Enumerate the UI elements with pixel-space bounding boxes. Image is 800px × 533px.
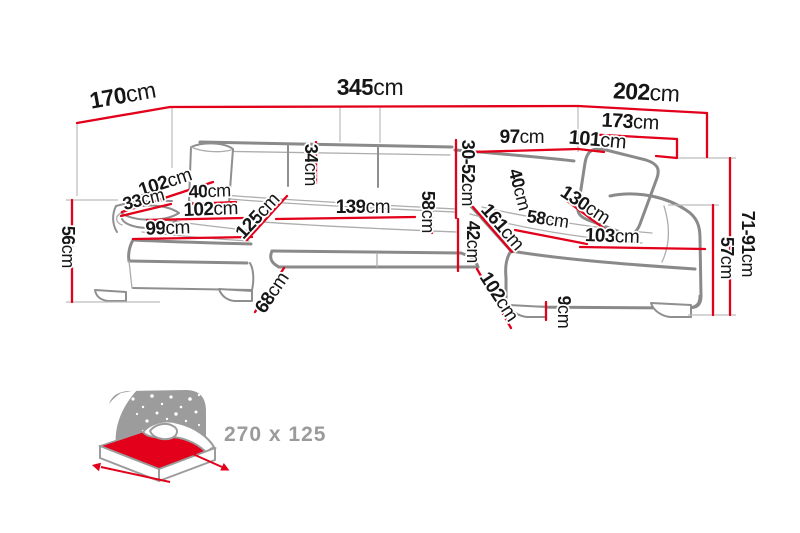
right-chaise-front-top	[511, 251, 695, 269]
left-chaise-front-bottom	[129, 261, 247, 263]
dim-leg-height-label: 9cm	[554, 296, 574, 329]
sleeping-function-icon	[92, 390, 230, 482]
dim-right-inner-line-b	[656, 156, 677, 158]
sofa-dimension-diagram: 170cm 345cm 202cm 173cm 101cm 97cm 30-52…	[0, 0, 800, 533]
backrest-inner-edge	[204, 151, 450, 155]
dim-left-chaise-front-label: 99cm	[145, 217, 190, 240]
width-arrow-head	[92, 463, 101, 471]
dimension-labels: 170cm 345cm 202cm 173cm 101cm 97cm 30-52…	[58, 74, 758, 328]
dim-back-left-label: 170cm	[88, 77, 158, 114]
dim-seat-height-label: 42cm	[463, 221, 483, 263]
dim-right-back-seg-label: 97cm	[500, 127, 545, 148]
center-front-left-corner	[271, 251, 279, 267]
dim-left-chaise-side-label: 68cm	[251, 269, 293, 318]
dim-left-height-label: 56cm	[58, 226, 78, 268]
dim-backrest-height-label: 30-52cm	[458, 140, 478, 206]
dim-back-right-label: 202cm	[612, 77, 680, 106]
left-chaise-base-left	[129, 261, 132, 288]
leg-right-arm	[651, 303, 691, 317]
dim-center-seat-depth-label: 58cm	[418, 191, 438, 233]
dim-total-width-line	[170, 106, 578, 107]
dim-back-cushion-label: 34cm	[301, 144, 321, 186]
dim-right-chaise-side-label: 102cm	[475, 268, 522, 325]
pillow-shape	[150, 424, 177, 439]
backrest-top-edge	[200, 142, 452, 147]
left-chaise-corner-curve	[250, 263, 253, 290]
dim-left-seat-width-label: 102cm	[183, 198, 238, 221]
center-front-top	[272, 251, 461, 253]
right-arm-inner-curve	[662, 206, 668, 262]
dim-right-chaise-front-line	[580, 247, 705, 249]
diagram-canvas: 170cm 345cm 202cm 173cm 101cm 97cm 30-52…	[0, 0, 800, 533]
dim-center-seat-width-label: 139cm	[336, 197, 391, 218]
sleeping-area-label: 270 x 125	[224, 423, 326, 446]
dim-seat-back-height-label: 57cm	[717, 237, 737, 279]
dim-total-height-label: 71-91cm	[738, 211, 758, 277]
leg-center	[219, 289, 252, 301]
dim-right-back-seg-line	[472, 149, 578, 152]
dim-right-chaise-front-label: 103cm	[585, 225, 640, 248]
dim-total-width-label: 345cm	[337, 74, 404, 100]
leg-left-chaise	[95, 290, 126, 301]
left-chaise-left-corner	[129, 240, 133, 261]
right-headrest-cushion	[578, 149, 659, 234]
